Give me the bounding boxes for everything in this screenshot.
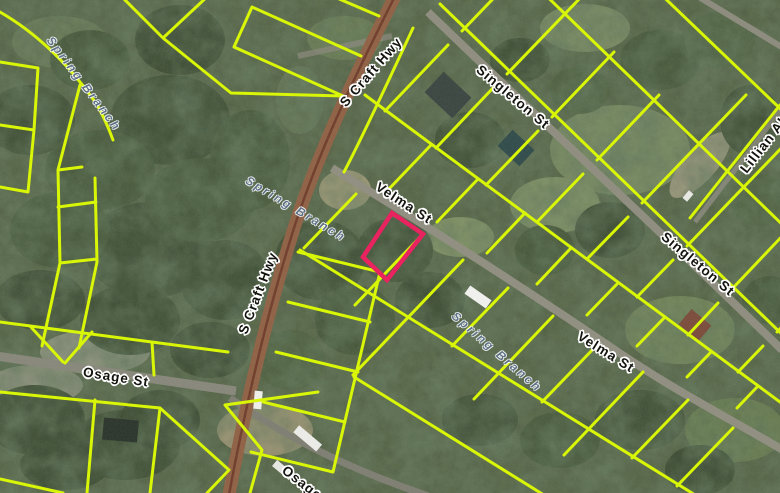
map-viewport[interactable]: S Craft HwySingleton StVelma StS Craft H…	[0, 0, 780, 493]
aerial-imagery	[0, 0, 780, 493]
